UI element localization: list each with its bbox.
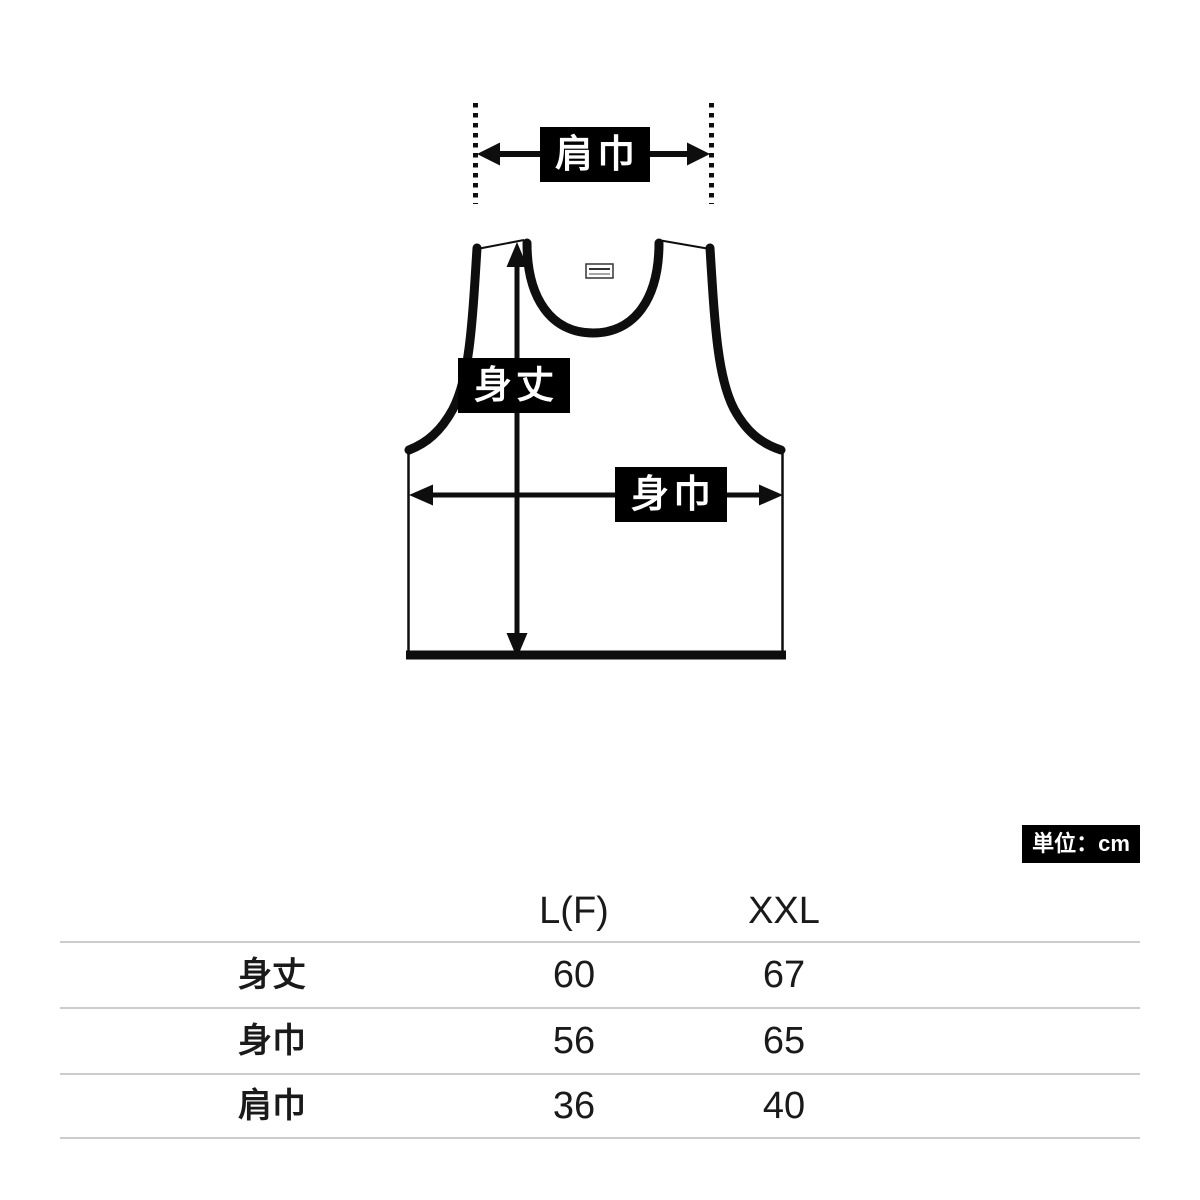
- shoulder-width-label: 肩巾: [540, 127, 650, 182]
- neck-brand-tag: [586, 264, 613, 278]
- value-lf: 56: [484, 1022, 664, 1060]
- value-lf: 60: [484, 956, 664, 994]
- size-table: L(F) XXL 身丈 60 67 身巾 56 65 肩巾 36 40: [60, 880, 1140, 1139]
- column-header-lf: L(F): [484, 892, 664, 930]
- body-length-label: 身丈: [458, 358, 570, 413]
- unit-badge: 単位：cm: [1022, 825, 1140, 863]
- value-xxl: 65: [664, 1022, 904, 1060]
- table-row-body-width: 身巾 56 65: [60, 1007, 1140, 1073]
- table-row-shoulder-width: 肩巾 36 40: [60, 1073, 1140, 1139]
- body-width-label: 身巾: [615, 467, 727, 522]
- size-chart-page: 肩巾 身丈 身巾 単位：cm L(F) XXL 身丈 60 67 身巾 56 6…: [0, 0, 1200, 1200]
- column-header-xxl: XXL: [664, 892, 904, 930]
- table-row-body-length: 身丈 60 67: [60, 941, 1140, 1007]
- row-label: 身巾: [60, 1024, 484, 1058]
- value-xxl: 40: [664, 1087, 904, 1125]
- size-table-header-row: L(F) XXL: [60, 880, 1140, 941]
- tank-top-outline: [406, 240, 786, 655]
- value-xxl: 67: [664, 956, 904, 994]
- body-length-arrow: [507, 242, 528, 658]
- value-lf: 36: [484, 1087, 664, 1125]
- row-label: 身丈: [60, 958, 484, 992]
- row-label: 肩巾: [60, 1089, 484, 1123]
